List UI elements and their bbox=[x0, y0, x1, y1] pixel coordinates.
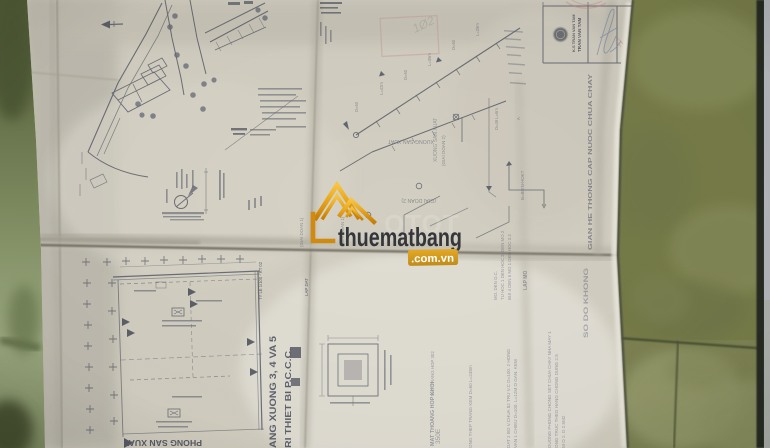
svg-text:.com.vn: .com.vn bbox=[411, 253, 454, 266]
svg-text:thuematbang: thuematbang bbox=[338, 222, 462, 252]
